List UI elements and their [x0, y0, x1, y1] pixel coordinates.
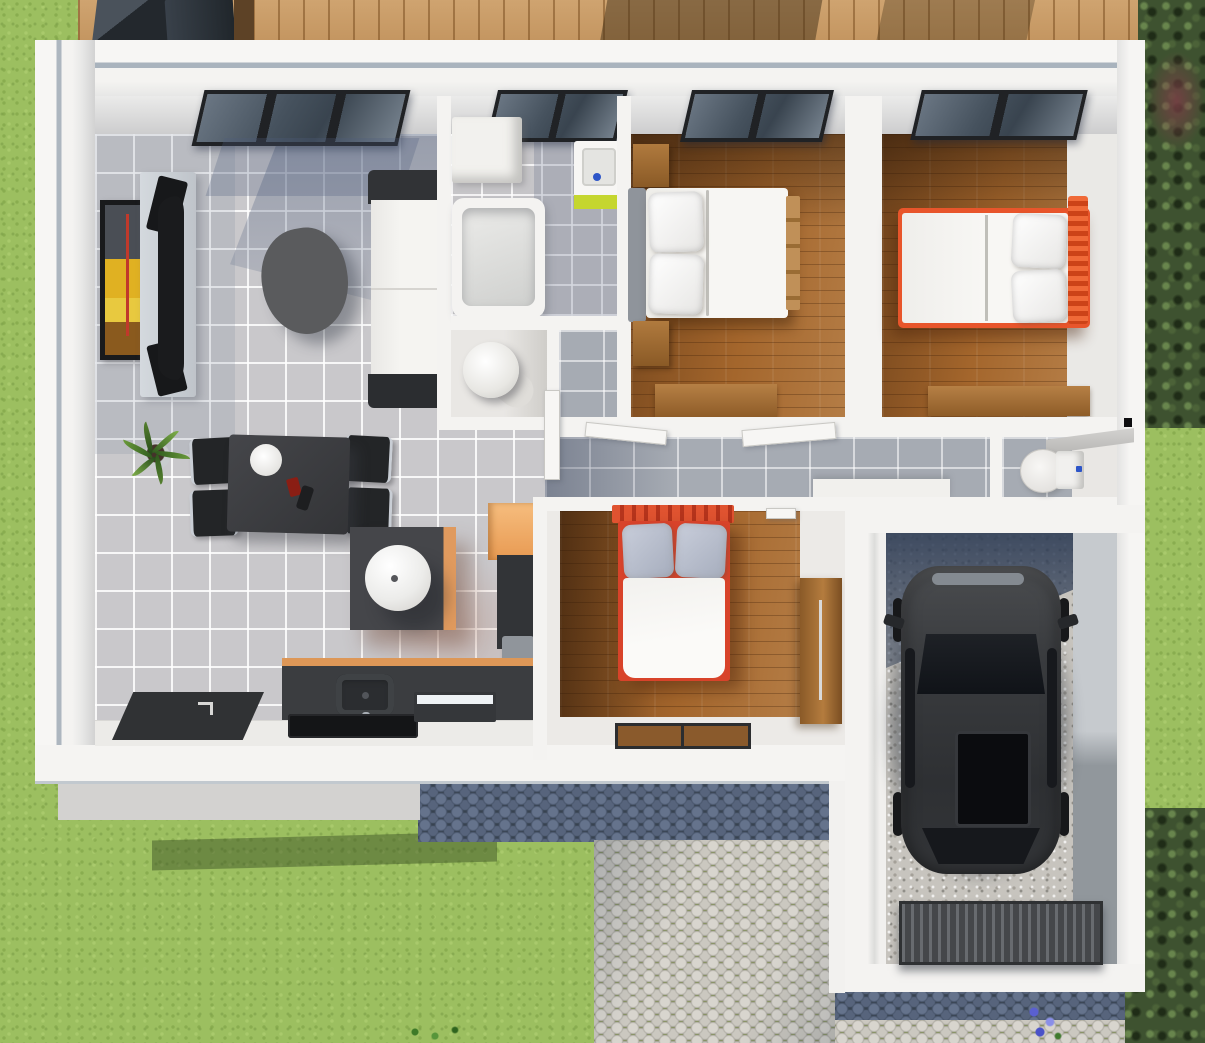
wardrobe	[800, 578, 842, 724]
red-shrub	[1148, 52, 1205, 150]
garage-apron	[835, 1020, 1125, 1043]
door-bedroom-3	[766, 508, 796, 519]
bed1-duvet-fold	[706, 190, 709, 316]
walkway-shade	[594, 840, 835, 1043]
sofa-armrest-bottom	[368, 374, 444, 408]
sofa-armrest-top	[368, 170, 444, 204]
sofa-seam	[371, 288, 444, 290]
wall-west	[35, 40, 95, 781]
bed2-headboard	[1068, 196, 1088, 324]
grass-sprig	[405, 1022, 475, 1043]
counter-edge-orange	[282, 658, 545, 666]
car-rear-window	[922, 828, 1040, 864]
bed2-duvet-fold	[985, 215, 988, 321]
car-sunroof	[955, 731, 1031, 827]
nightstand-bottom	[633, 321, 669, 366]
bathtub-basin	[462, 208, 535, 306]
garage-wall-south	[845, 964, 1145, 992]
bed1-headboard	[628, 188, 646, 322]
cooktop	[288, 714, 418, 738]
bath-storage-bench	[452, 117, 522, 183]
flush-button	[1076, 466, 1082, 472]
lamp-dot	[391, 575, 398, 582]
bed1-footboard	[786, 196, 800, 310]
bedroom1-dresser	[655, 384, 777, 417]
blue-flowers	[1026, 1004, 1070, 1043]
skylight-bedroom1	[680, 90, 834, 142]
door-kitchen-hall	[544, 390, 560, 480]
hallway-shadow	[545, 437, 675, 497]
dishwasher	[414, 692, 496, 722]
car-grille-strip	[932, 573, 1024, 585]
entry-door-mat	[112, 692, 264, 740]
sphere-lamp	[365, 545, 431, 611]
dishwasher-top	[417, 695, 493, 704]
sofa	[368, 170, 444, 408]
door-mat-right	[681, 723, 751, 749]
sink-drain	[362, 692, 369, 699]
wall-north	[35, 40, 1145, 96]
wall-living-bath	[437, 96, 451, 417]
mat-logo	[198, 702, 213, 715]
bed3-pillow	[675, 523, 728, 580]
wardrobe-handle	[819, 600, 822, 700]
garage-wall-west	[845, 533, 886, 964]
bed2-pillow	[1011, 269, 1068, 324]
dining-chair	[343, 435, 393, 483]
wall-wc-west	[990, 425, 1002, 505]
bed1-pillow	[648, 191, 704, 253]
dinner-plate	[250, 444, 282, 476]
skylight-bedroom2	[910, 90, 1088, 140]
bedroom3-floor-white-left	[547, 511, 560, 717]
cobblestone-shadowed	[418, 780, 836, 842]
car-windshield	[917, 634, 1045, 694]
wall-bath-closet	[451, 316, 617, 330]
car-body	[901, 566, 1061, 874]
faucet-blue-icon	[593, 173, 601, 181]
sink-lime-cabinet	[574, 195, 621, 209]
bed1-pillow	[648, 253, 704, 315]
bedroom2-dresser	[928, 386, 1090, 416]
wall-bedroom1-2	[845, 96, 882, 425]
car-side-window	[905, 648, 915, 788]
art-red-line	[126, 214, 129, 336]
garage-inner-east-wall	[1073, 533, 1117, 964]
garage-wall-north	[845, 505, 1145, 533]
bed3-pillow	[622, 523, 675, 580]
tv-curved-screen	[158, 196, 184, 380]
car-side-window	[1047, 648, 1057, 788]
nightstand-top	[633, 144, 669, 187]
door-mat-left	[615, 723, 685, 749]
potted-plant	[118, 413, 190, 477]
wall-bedroom3-west	[533, 511, 547, 760]
garage-door	[899, 901, 1103, 965]
garage-west-outer-face	[829, 781, 845, 993]
bathtub	[452, 198, 545, 318]
wall-closet-south	[437, 417, 559, 430]
garage-apron-shadowed	[835, 990, 1125, 1022]
bed2-pillow	[1011, 213, 1068, 270]
vanity-sink	[574, 141, 621, 209]
wall-south	[35, 745, 858, 784]
water-heater-cylinder	[463, 342, 519, 398]
wall-switch	[1124, 418, 1132, 427]
bed3-duvet	[623, 578, 725, 678]
bath-hall-tiles	[559, 330, 617, 425]
floor-plan-scene	[0, 0, 1205, 1043]
